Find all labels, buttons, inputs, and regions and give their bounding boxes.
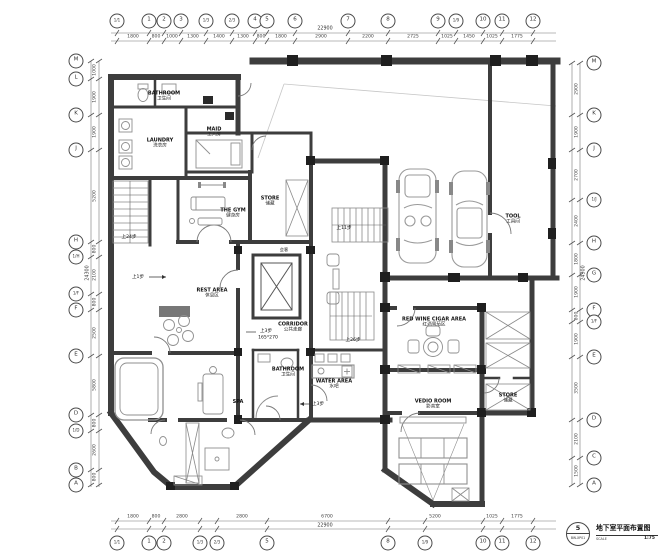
dim-label-top: 2900: [315, 35, 327, 40]
annotation-steps-3b: 上3步: [312, 401, 324, 407]
dim-label-left: 2100: [93, 269, 98, 281]
dim-label-top: 1300: [187, 35, 199, 40]
grid-bubble-bottom: 1: [142, 536, 157, 551]
room-label-meeting: 会客: [280, 247, 288, 253]
dim-label-right: 2900: [575, 83, 580, 95]
dim-label-bottom: 2800: [236, 515, 248, 520]
grid-bubble-right: K: [587, 108, 602, 123]
title-block: 5 BW-XP01 地下室平面布置图 SCALE 1:75: [548, 516, 658, 548]
total-dim-bottom: 22900: [317, 524, 332, 529]
grid-bubble-bottom: 11: [495, 536, 510, 551]
grid-bubble-bottom: 1/9: [418, 536, 433, 551]
floor-plan-drawing: [0, 0, 660, 559]
grid-bubble-right: C: [587, 451, 602, 466]
scale-value: 1:75: [644, 536, 655, 541]
grid-bubble-left: F: [69, 303, 84, 318]
grid-bubble-bottom: 2: [157, 536, 172, 551]
dim-label-left: 800: [93, 473, 98, 482]
grid-bubble-bottom: 10: [476, 536, 491, 551]
grid-bubble-right: 1/F: [587, 315, 602, 330]
dimension-ticks: [88, 30, 583, 532]
grid-bubble-right: H: [587, 236, 602, 251]
dim-label-top: 1800: [127, 35, 139, 40]
dim-label-left: 5800: [93, 379, 98, 391]
dim-label-bottom: 1800: [127, 515, 139, 520]
grid-bubble-top: 9: [431, 14, 446, 29]
grid-bubble-left: E: [69, 349, 84, 364]
grid-bubble-left: 1/F: [69, 287, 84, 302]
grid-bubble-left: 1/D: [69, 424, 84, 439]
annotation-steps-24: 上24步: [121, 234, 136, 240]
grid-bubble-left: K: [69, 108, 84, 123]
grid-bubble-right: M: [587, 56, 602, 71]
grid-bubble-right: A: [587, 478, 602, 493]
dim-label-left: 800: [93, 419, 98, 428]
annotation-dim-165: 165*270: [258, 336, 278, 341]
dim-label-top: 2725: [407, 35, 419, 40]
dim-label-right: 2100: [575, 433, 580, 445]
sheet-number-bubble: 5 BW-XP01: [566, 522, 590, 546]
room-label-maid: MAID工人房: [207, 126, 222, 138]
grid-bubble-left: D: [69, 408, 84, 423]
dim-label-right: 1900: [575, 333, 580, 345]
scale-label: SCALE: [596, 537, 607, 541]
grid-bubble-top: 1/9: [449, 14, 464, 29]
grid-bubble-right: E: [587, 350, 602, 365]
grid-bubble-top: 5: [260, 14, 275, 29]
dim-label-bottom: 1775: [511, 515, 523, 520]
dim-label-left: 800: [93, 298, 98, 307]
dim-label-top: 1000: [166, 35, 178, 40]
dim-label-top: 2200: [362, 35, 374, 40]
grid-bubble-left: 1/H: [69, 250, 84, 265]
grid-bubble-bottom: 5: [260, 536, 275, 551]
dim-label-left: 1000: [93, 64, 98, 76]
grid-bubble-top: 8: [381, 14, 396, 29]
car-sports: [396, 169, 439, 263]
dim-label-top: 1300: [237, 35, 249, 40]
dim-label-bottom: 800: [152, 515, 161, 520]
dim-label-top: 1400: [213, 35, 225, 40]
grid-bubble-left: J: [69, 143, 84, 158]
room-label-water-area: WATER AREA水吧: [316, 378, 352, 390]
dim-label-bottom: 1025: [486, 515, 498, 520]
dim-label-top: 1450: [463, 35, 475, 40]
room-label-laundry: LAUNDRY洗衣房: [147, 137, 174, 149]
dim-label-bottom: 2800: [176, 515, 188, 520]
grid-bubble-top: 1/3: [199, 14, 214, 29]
grid-bubble-right: D: [587, 413, 602, 428]
grid-bubble-top: 1/1: [110, 14, 125, 29]
room-label-gym: THE GYM健身房: [220, 207, 245, 219]
dim-label-right: 1900: [575, 126, 580, 138]
room-label-video-room: VEDIO ROOM影音室: [415, 398, 452, 410]
grid-bubble-top: 2/3: [225, 14, 240, 29]
dim-label-top: 800: [152, 35, 161, 40]
drawing-number: BW-XP01: [567, 534, 589, 542]
room-label-bathroom-mid: BATHROOM卫生间: [272, 366, 304, 378]
grid-bubble-right: G: [587, 268, 602, 283]
dim-label-right: 3500: [575, 382, 580, 394]
grid-bubble-top: 10: [476, 14, 491, 29]
dim-label-left: 2500: [93, 327, 98, 339]
dim-label-top: 800: [257, 35, 266, 40]
grid-bubble-bottom: 8: [381, 536, 396, 551]
room-label-spa: SPA: [233, 399, 244, 405]
dim-label-left: 2600: [93, 444, 98, 456]
dim-label-top: 1800: [275, 35, 287, 40]
grid-bubble-bottom: 2/3: [210, 536, 225, 551]
room-label-store-left: STORE储藏: [261, 195, 280, 207]
grid-bubble-left: H: [69, 235, 84, 250]
total-dim-top: 22900: [317, 27, 332, 32]
structural-columns: [166, 55, 556, 490]
grid-bubble-top: 12: [526, 14, 541, 29]
sheet-number: 5: [567, 523, 589, 534]
room-label-tool: TOOL工具间: [505, 213, 520, 225]
dim-label-right: 2400: [575, 215, 580, 227]
dim-label-bottom: 5200: [429, 515, 441, 520]
grid-bubble-top: 3: [174, 14, 189, 29]
dim-label-left: 800: [93, 245, 98, 254]
annotation-steps-11: 上11步: [336, 225, 351, 231]
dim-label-left: 1900: [93, 126, 98, 138]
elevator-shaft: [261, 263, 292, 310]
dim-label-right: 2700: [575, 169, 580, 181]
grid-bubble-right: J: [587, 143, 602, 158]
room-label-rest-area: REST AREA休息区: [196, 287, 227, 299]
grid-bubble-left: B: [69, 463, 84, 478]
grid-bubble-top: 7: [341, 14, 356, 29]
grid-bubble-left: L: [69, 72, 84, 87]
annotation-steps-1: 上1步: [132, 274, 144, 280]
drawing-title: 地下室平面布置图: [596, 522, 650, 532]
grid-bubble-left: A: [69, 478, 84, 493]
annotation-steps-26: 上26步: [345, 337, 360, 343]
dim-label-left: 1900: [93, 91, 98, 103]
floor-plan-canvas: BATHROOM卫生间 LAUNDRY洗衣房 MAID工人房 THE GYM健身…: [0, 0, 660, 559]
walls: [111, 61, 557, 504]
dim-label-bottom: 6700: [321, 515, 333, 520]
grid-bubble-left: M: [69, 54, 84, 69]
room-label-corridor: CORRIDOR公共走廊: [278, 321, 308, 333]
room-label-bathroom-top: BATHROOM卫生间: [148, 90, 180, 102]
grid-bubble-top: 11: [495, 14, 510, 29]
dim-label-right: 1900: [575, 286, 580, 298]
grid-bubble-bottom: 1/1: [110, 536, 125, 551]
room-label-store-right: STORE储藏: [499, 392, 518, 404]
dim-label-top: 1025: [486, 35, 498, 40]
dim-label-top: 1775: [511, 35, 523, 40]
grid-bubble-bottom: 1/3: [193, 536, 208, 551]
dim-label-right: 1500: [575, 465, 580, 477]
car-sedan: [449, 171, 490, 267]
driveway-ramp-lines: [258, 84, 556, 158]
dim-label-left: 5200: [93, 190, 98, 202]
grid-bubble-top: 1: [142, 14, 157, 29]
dim-label-right: 1800: [575, 253, 580, 265]
grid-bubble-top: 2: [157, 14, 172, 29]
dim-label-top: 1025: [441, 35, 453, 40]
room-label-red-wine: RED WINE CIGAR AREA红酒雪茄区: [402, 316, 466, 328]
annotation-steps-3: 上3步: [260, 328, 272, 334]
grid-bubble-bottom: 12: [526, 536, 541, 551]
dim-label-right: 800: [575, 312, 580, 321]
total-dim-left: 24300: [86, 265, 91, 280]
grid-bubble-top: 6: [288, 14, 303, 29]
grid-bubble-right: 1/J: [587, 193, 602, 208]
